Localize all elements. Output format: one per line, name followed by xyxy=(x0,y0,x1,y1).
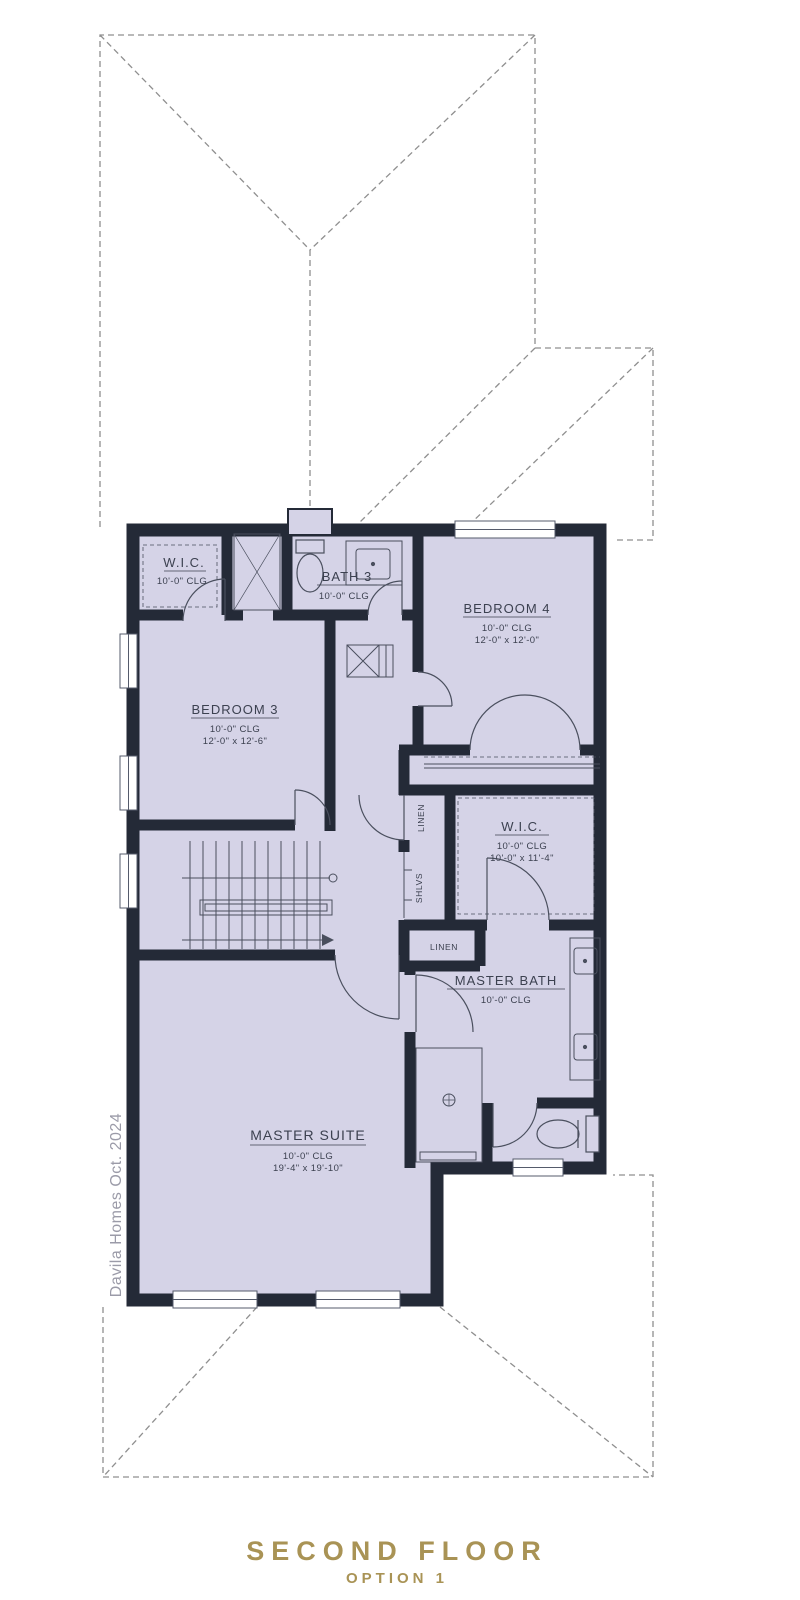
window-bedroom3-1 xyxy=(120,634,137,688)
closet-label-shlvs: SHLVS xyxy=(414,873,424,903)
window-master-suite-1 xyxy=(173,1291,257,1308)
room-clg-master-suite: 10'-0" CLG xyxy=(283,1151,333,1162)
closet-label-linen-upper: LINEN xyxy=(416,804,426,832)
sheet-subtitle: OPTION 1 xyxy=(346,1570,448,1587)
sheet-title: SECOND FLOOR xyxy=(246,1536,548,1566)
window-bedroom3-2 xyxy=(120,756,137,810)
room-clg-master-bath: 10'-0" CLG xyxy=(481,995,531,1006)
floor-plan-drawing: W.I.C. 10'-0" CLG BATH 3 10'-0" CLG BEDR… xyxy=(0,0,800,1600)
roof-outline-upper xyxy=(100,35,653,540)
room-clg-wic3: 10'-0" CLG xyxy=(157,576,207,587)
watermark-text: Davila Homes Oct. 2024 xyxy=(108,1113,125,1297)
room-label-wic3: W.I.C. xyxy=(163,555,204,570)
closet-label-linen-lower: LINEN xyxy=(430,942,458,952)
room-label-master-wic: W.I.C. xyxy=(501,819,542,834)
room-dims-master-suite: 19'-4" x 19'-10" xyxy=(273,1163,343,1174)
room-clg-bedroom3: 10'-0" CLG xyxy=(210,724,260,735)
window-bedroom4-top xyxy=(455,521,555,538)
floor-plan-sheet: W.I.C. 10'-0" CLG BATH 3 10'-0" CLG BEDR… xyxy=(0,0,800,1600)
window-stairwell xyxy=(120,854,137,908)
room-dims-bedroom3: 12'-0" x 12'-6" xyxy=(203,736,267,747)
room-dims-master-wic: 10'-0" x 11'-4" xyxy=(490,853,554,864)
room-clg-master-wic: 10'-0" CLG xyxy=(497,841,547,852)
room-label-bath3: BATH 3 xyxy=(322,569,373,584)
room-label-bedroom3: BEDROOM 3 xyxy=(191,702,278,717)
room-clg-bedroom4: 10'-0" CLG xyxy=(482,623,532,634)
room-label-master-bath: MASTER BATH xyxy=(455,973,558,988)
room-label-bedroom4: BEDROOM 4 xyxy=(463,601,550,616)
room-label-master-suite: MASTER SUITE xyxy=(250,1127,365,1143)
room-dims-bedroom4: 12'-0" x 12'-0" xyxy=(475,635,539,646)
window-master-bath xyxy=(513,1159,563,1176)
room-clg-bath3: 10'-0" CLG xyxy=(319,591,369,602)
window-master-suite-2 xyxy=(316,1291,400,1308)
